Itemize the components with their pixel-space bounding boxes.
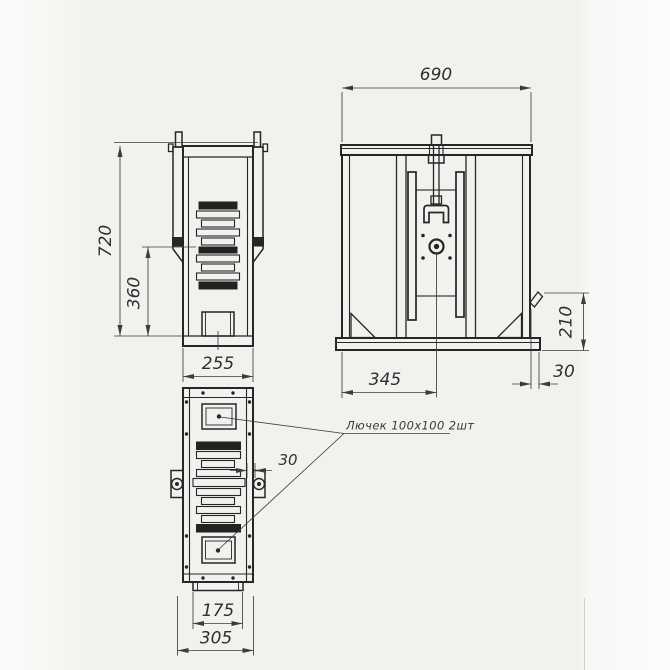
louver-slat	[202, 220, 235, 227]
louver-slat	[202, 264, 235, 271]
corner-gusset	[351, 314, 375, 338]
arrowhead	[520, 86, 531, 91]
louver-slat	[197, 229, 240, 236]
louver-slat	[197, 489, 241, 496]
dim-720-label: 720	[96, 225, 116, 257]
arrowhead	[146, 247, 151, 258]
louver-slat	[197, 442, 241, 450]
bolt-dot	[448, 256, 452, 260]
plan-view	[171, 388, 265, 591]
louver-slat	[197, 525, 241, 533]
front-view	[169, 132, 268, 350]
dim-210-label: 210	[557, 306, 577, 338]
rod-slot	[430, 145, 444, 155]
top-hatch	[202, 404, 236, 429]
channel-strip	[408, 172, 416, 320]
arrowhead	[232, 621, 243, 626]
dim-305-label: 305	[200, 629, 232, 649]
arrowhead	[118, 146, 123, 157]
bolt-dot	[185, 432, 188, 435]
arrowhead	[581, 340, 586, 351]
hub-center	[434, 244, 439, 249]
bolt-dot	[185, 400, 188, 403]
rail-neck	[254, 132, 261, 147]
bolt-dot	[248, 400, 251, 403]
right-rail	[253, 132, 268, 263]
arrowhead	[243, 648, 254, 653]
dim-255-label: 255	[202, 354, 234, 374]
leader-line	[220, 417, 344, 434]
arrowhead	[193, 621, 204, 626]
arrowhead	[178, 648, 189, 653]
louver-slat	[197, 452, 241, 459]
dim-30-label: 30	[553, 362, 575, 382]
left-pivot-ear	[171, 471, 183, 498]
rail-clip	[253, 237, 264, 247]
arrowhead	[183, 374, 194, 379]
arrowhead	[342, 390, 353, 395]
arrowhead	[146, 325, 151, 336]
bottom-hatch	[202, 537, 235, 563]
louver-slat	[202, 461, 235, 468]
technical-drawing-canvas: 720 360 255	[0, 0, 670, 670]
rod-collar	[429, 155, 445, 163]
fork-bracket	[424, 206, 449, 223]
arrowhead	[426, 390, 437, 395]
louver-slat	[202, 498, 235, 505]
dim-30-plan-label: 30	[278, 451, 297, 469]
arrowhead	[236, 468, 247, 473]
bolt-dot	[248, 534, 251, 537]
louver-slat	[193, 479, 245, 487]
arrowhead	[581, 293, 586, 304]
bolt-dot	[185, 565, 188, 568]
side-stub-bracket	[530, 292, 543, 307]
arrowhead	[255, 468, 266, 473]
plan-louver-stack	[193, 442, 245, 532]
rod-collar	[431, 196, 442, 204]
bolt-dot	[421, 256, 425, 260]
hatch-dot	[217, 414, 221, 418]
louver-slat	[199, 202, 237, 209]
bolt-dot	[231, 391, 234, 394]
louver-slat	[202, 516, 235, 523]
louver-slat	[197, 211, 240, 218]
louver-slat	[197, 507, 241, 514]
louver-slat	[202, 238, 235, 245]
bottom-tongue	[193, 582, 243, 591]
casing-outline	[183, 146, 253, 346]
louver-slat	[199, 282, 237, 289]
bolt-dot	[448, 234, 452, 238]
arrowhead	[520, 382, 531, 387]
bolt-dot	[201, 391, 204, 394]
louver-stack	[197, 202, 240, 289]
louver-slat	[199, 247, 237, 253]
arrowhead	[242, 374, 253, 379]
dim-360-label: 360	[125, 277, 145, 309]
top-beam	[341, 145, 532, 155]
rod-cap	[432, 135, 442, 145]
dim-175-label: 175	[202, 601, 234, 621]
ear-center	[175, 482, 179, 486]
drawing-sheet: 720 360 255	[0, 0, 670, 670]
base-beam	[336, 338, 540, 350]
corner-gusset	[498, 314, 522, 338]
bolt-dot	[248, 565, 251, 568]
hatch-note-label: Лючек 100х100 2шт	[345, 419, 475, 433]
louver-slat	[197, 273, 240, 280]
louver-slat	[197, 255, 240, 262]
arrowhead	[118, 325, 123, 336]
bolt-dot	[421, 234, 425, 238]
left-rail	[169, 132, 184, 263]
side-view	[336, 135, 543, 398]
rail-clip	[172, 237, 183, 247]
bolt-dot	[248, 432, 251, 435]
rail-neck	[176, 132, 183, 147]
ear-center	[257, 482, 261, 486]
dim-345-label: 345	[369, 370, 401, 390]
channel-strip	[456, 172, 464, 317]
arrowhead	[539, 382, 550, 387]
arrowhead	[342, 86, 353, 91]
dim-690-label: 690	[420, 65, 452, 85]
bolt-dot	[231, 576, 234, 579]
bolt-dot	[185, 534, 188, 537]
bolt-dot	[201, 576, 204, 579]
